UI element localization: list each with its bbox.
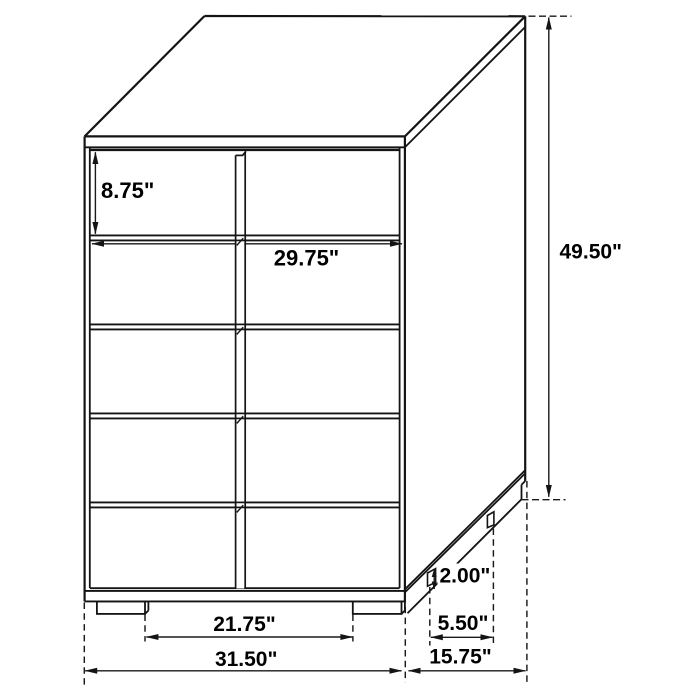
svg-text:5.50": 5.50" [438,612,489,635]
svg-text:15.75": 15.75" [429,646,492,669]
svg-text:8.75": 8.75" [101,178,154,203]
svg-text:49.50": 49.50" [560,241,623,264]
svg-text:29.75": 29.75" [274,246,339,271]
svg-text:2.00": 2.00" [440,565,491,588]
svg-text:21.75": 21.75" [213,613,276,636]
svg-text:31.50": 31.50" [215,648,278,671]
